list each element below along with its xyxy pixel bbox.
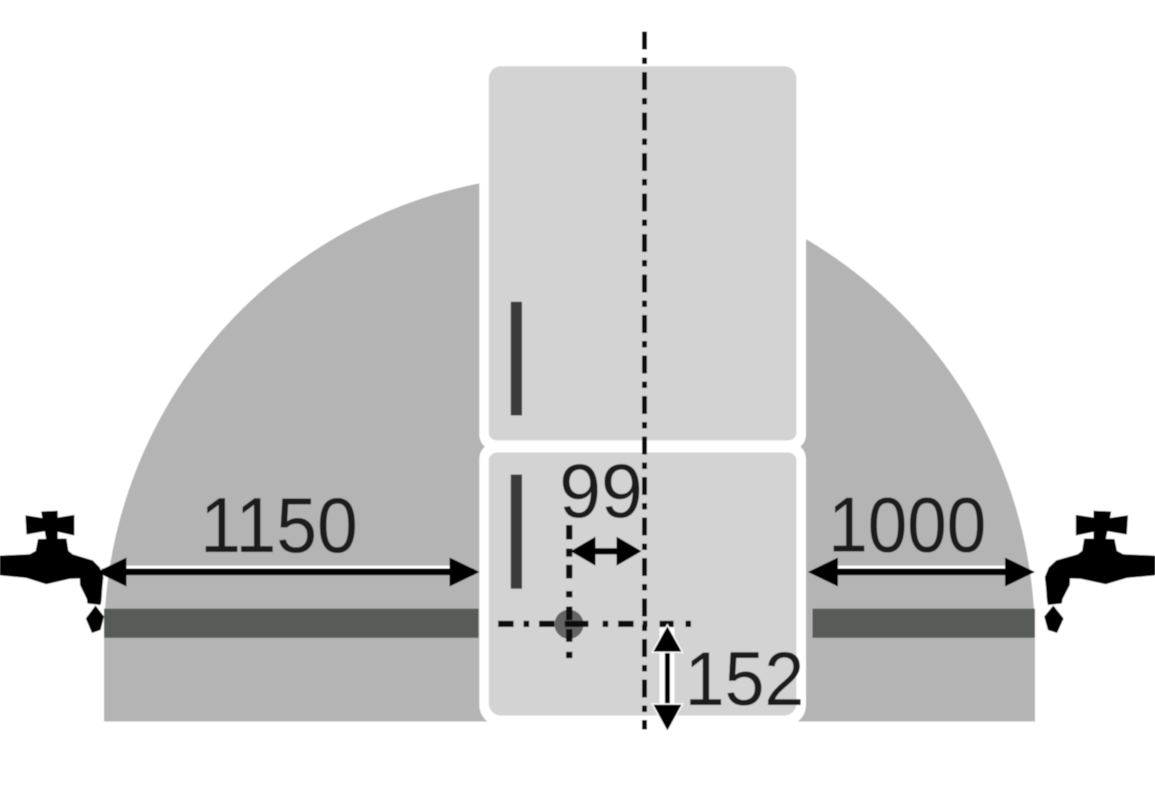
svg-text:1150: 1150: [200, 481, 358, 569]
svg-text:99: 99: [559, 449, 643, 534]
svg-text:152: 152: [685, 637, 805, 722]
svg-text:1000: 1000: [828, 480, 986, 568]
